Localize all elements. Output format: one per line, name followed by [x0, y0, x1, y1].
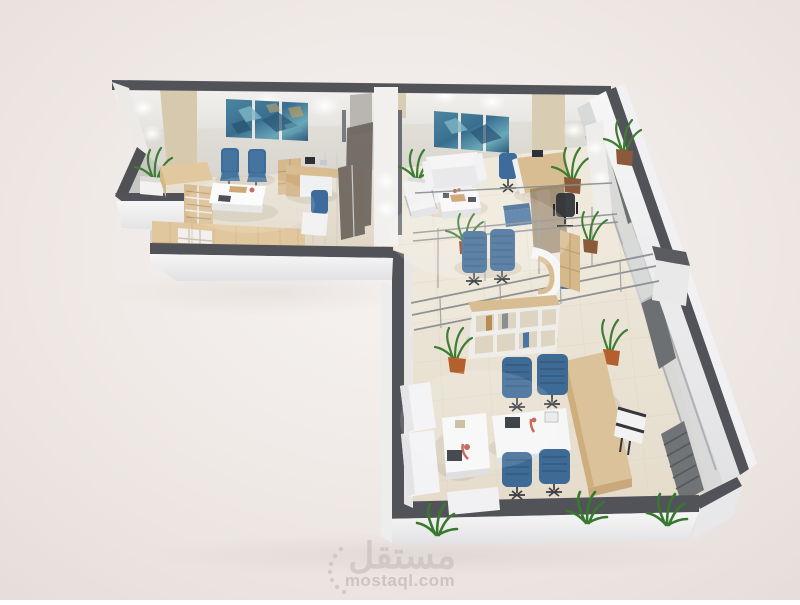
svg-text:mostaql.com: mostaql.com: [345, 571, 455, 590]
svg-text:مستقل: مستقل: [348, 535, 456, 576]
